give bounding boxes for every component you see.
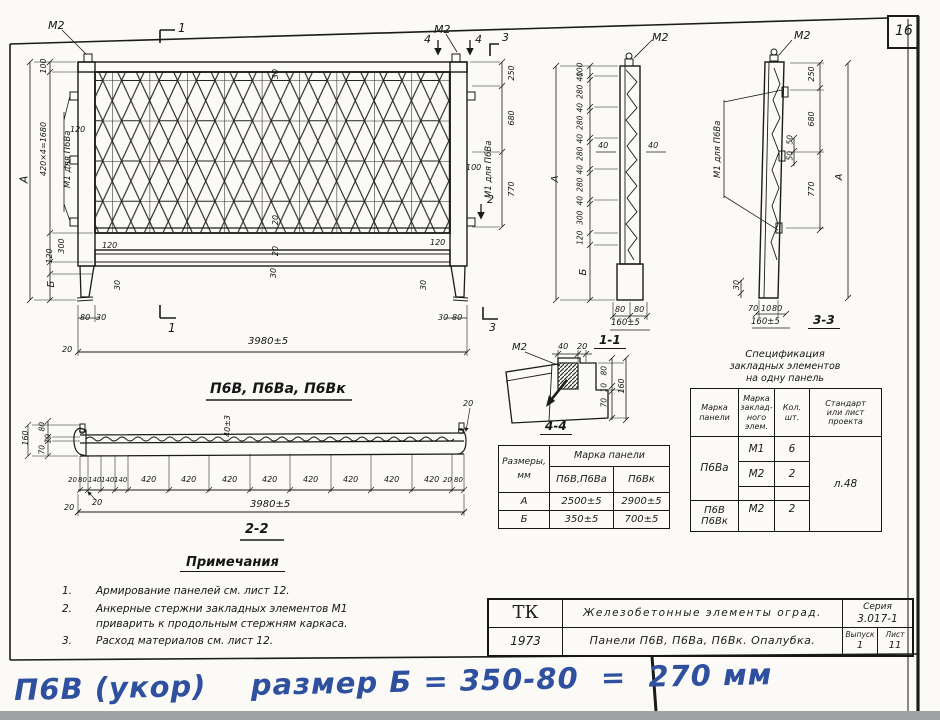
section-2-2 bbox=[25, 400, 470, 540]
s22-chain-6: 420 bbox=[181, 476, 196, 484]
detail-4-4 bbox=[506, 350, 629, 423]
note-3-text: Расход материалов см. лист 12. bbox=[96, 636, 273, 647]
front-dim-300: 300 bbox=[58, 226, 66, 266]
d44-dim-20: 20 bbox=[577, 343, 587, 351]
front-cut3-top: 3 bbox=[502, 32, 509, 43]
notes-title: Примечания bbox=[180, 556, 285, 572]
title-block-series: 3.017-1 bbox=[857, 613, 898, 625]
section-1-1-caption: 1-1 bbox=[594, 334, 626, 349]
spec-g1r1-qty: 6 bbox=[774, 436, 809, 461]
s33-dim-70: 70 bbox=[748, 305, 758, 313]
front-dim-f30l: 30 bbox=[114, 265, 122, 305]
front-dim-i30b: 30 bbox=[270, 253, 278, 293]
size-row-a-name: А bbox=[499, 492, 549, 510]
title-block-org: ТК bbox=[489, 600, 562, 627]
s11-dim-80r: 80 bbox=[634, 306, 644, 314]
s22-chain-4: 140 bbox=[114, 477, 127, 484]
front-dim-f30r: 30 bbox=[420, 265, 428, 305]
detail-4-4-caption: 4-4 bbox=[540, 420, 572, 435]
s33-dim-250: 250 bbox=[808, 54, 816, 94]
spec-empty-qty bbox=[774, 486, 809, 500]
s22-chain-0: 20 bbox=[68, 477, 77, 484]
front-dim-680: 680 bbox=[508, 98, 516, 138]
embed-spec-table: Марка панели Марка заклад- ного элем. Ко… bbox=[690, 388, 882, 532]
front-dim-80l: 80 bbox=[80, 314, 90, 322]
front-cut4-left: 4 bbox=[424, 34, 431, 45]
s22-chain-1: 80 bbox=[78, 477, 87, 484]
front-dim-i120r: 120 bbox=[430, 239, 445, 247]
spec-h3-line2: шт. bbox=[785, 413, 800, 422]
spec-h2-line4: элем. bbox=[745, 422, 768, 431]
s33-dim-a: А bbox=[835, 157, 845, 197]
s11-dim-a: А bbox=[551, 159, 561, 199]
s33-dim-770: 770 bbox=[808, 169, 816, 209]
s22-dim-70: 70 bbox=[38, 430, 46, 470]
spec-title-line1: Спецификация bbox=[690, 350, 880, 360]
front-m2-right-label: М2 bbox=[434, 24, 451, 35]
front-dim-250: 250 bbox=[508, 53, 516, 93]
spec-h4-line3: проекта bbox=[828, 417, 863, 426]
d44-dim-70: 70 bbox=[600, 383, 608, 423]
front-dim-b: Б bbox=[47, 264, 57, 304]
front-cut1-top: 1 bbox=[178, 22, 186, 34]
s22-dim-c20: 20 bbox=[92, 499, 102, 507]
d44-m2-label: М2 bbox=[512, 343, 527, 353]
s11-dim-b: Б bbox=[579, 252, 589, 292]
sheet-number: 16 bbox=[895, 23, 913, 39]
s22-chain-3: 140 bbox=[101, 477, 114, 484]
front-dim-total: 3980±5 bbox=[248, 337, 288, 347]
s22-chain-10: 420 bbox=[343, 476, 358, 484]
s22-chain-13: 20 bbox=[443, 477, 452, 484]
title-block-row1: Железобетонные элементы оград. bbox=[562, 600, 842, 627]
s22-dim-total: 3980±5 bbox=[250, 500, 290, 510]
s22-chain-8: 420 bbox=[262, 476, 277, 484]
s22-dim-t20: 20 bbox=[463, 400, 473, 408]
size-col0-title: Размеры, bbox=[502, 457, 546, 467]
s33-dim-10: 10 bbox=[761, 305, 771, 313]
spec-g1r2-mark: М2 bbox=[738, 461, 774, 486]
section-3-3-caption: 3-3 bbox=[808, 314, 840, 329]
s22-dim-160: 160 bbox=[22, 418, 30, 458]
size-col0-unit: мм bbox=[517, 471, 531, 481]
spec-g2r1-qty: 2 bbox=[774, 500, 809, 531]
spec-g1r2-qty: 2 bbox=[774, 461, 809, 486]
spec-standard: л.48 bbox=[809, 436, 881, 531]
spec-title-line3: на одну панель bbox=[690, 374, 880, 384]
spec-h4-line2: или лист bbox=[827, 408, 864, 417]
front-dim-100: 100 bbox=[40, 46, 48, 86]
s11-dim-160: 160±5 bbox=[611, 319, 640, 328]
s33-dim-30: 30 bbox=[733, 265, 741, 305]
spec-h1-line1: Марка bbox=[701, 403, 728, 412]
s33-m2-label: М2 bbox=[794, 30, 811, 41]
title-block-series-label: Серия bbox=[863, 602, 892, 612]
spec-h3-line1: Кол. bbox=[783, 403, 801, 412]
note-2-text-line2: приварить к продольным стержням каркаса. bbox=[96, 619, 347, 630]
note-1-number: 1. bbox=[62, 586, 72, 597]
s11-dim-80l: 80 bbox=[615, 306, 625, 314]
spec-empty-mark bbox=[738, 486, 774, 500]
s22-dim-40: 40±3 bbox=[224, 406, 232, 446]
title-block-sheet-label: Лист bbox=[885, 631, 904, 640]
front-dim-30l: 30 bbox=[96, 314, 106, 322]
spec-h1-line2: панели bbox=[699, 413, 730, 422]
spec-title-line2: закладных элементов bbox=[690, 362, 880, 372]
title-block-issue: 1 bbox=[857, 640, 863, 652]
s22-chain-7: 420 bbox=[222, 476, 237, 484]
d44-dim-160: 160 bbox=[618, 366, 626, 406]
s11-dim-40l: 40 bbox=[598, 142, 608, 150]
front-dim-1680: 420×4=1680 bbox=[40, 107, 48, 191]
s22-chain-2: 140 bbox=[88, 477, 101, 484]
size-group-header: Марка панели bbox=[549, 446, 669, 466]
front-embed-label-right: М1 для П6Ва bbox=[485, 127, 494, 211]
front-dim-e120: 120 bbox=[70, 126, 85, 134]
s22-dim-b20: 20 bbox=[64, 504, 74, 512]
s22-chain-9: 420 bbox=[303, 476, 318, 484]
front-m2-left-label: М2 bbox=[48, 20, 65, 31]
note-2-text-line1: Анкерные стержни закладных элементов М1 bbox=[96, 604, 347, 615]
spec-group1-name: П6Ва bbox=[691, 436, 738, 500]
s11-dim-40r: 40 bbox=[648, 142, 658, 150]
front-cut1-bottom: 1 bbox=[168, 322, 176, 334]
front-dim-i30t: 30 bbox=[272, 54, 280, 94]
size-row-a-v1: 2500±5 bbox=[549, 492, 613, 510]
s22-chain-11: 420 bbox=[384, 476, 399, 484]
front-dim-80r: 80 bbox=[452, 314, 462, 322]
size-row-b-v2: 700±5 bbox=[613, 510, 669, 528]
spec-h2-line1: Марка bbox=[743, 394, 770, 403]
spec-g2r1-mark: М2 bbox=[738, 500, 774, 531]
s33-dim-680: 680 bbox=[808, 99, 816, 139]
spec-h2-line3: ного bbox=[747, 413, 766, 422]
s22-chain-12: 420 bbox=[424, 476, 439, 484]
size-mark-2: П6Вк bbox=[613, 466, 669, 492]
spec-g1r1-mark: М1 bbox=[738, 436, 774, 461]
note-2-number: 2. bbox=[62, 604, 72, 615]
spec-h4-line1: Стандарт bbox=[825, 399, 866, 408]
spec-group2-name-2: П6Вк bbox=[701, 516, 728, 528]
front-cut3-bottom: 3 bbox=[489, 322, 496, 333]
note-1-text: Армирование панелей см. лист 12. bbox=[96, 586, 290, 597]
front-dim-i120l: 120 bbox=[102, 242, 117, 250]
s33-dim-80: 80 bbox=[772, 305, 782, 313]
d44-dim-40: 40 bbox=[558, 343, 568, 351]
front-cut4-right: 4 bbox=[475, 34, 482, 45]
section-3-3 bbox=[724, 40, 851, 328]
front-dim-20: 20 bbox=[62, 346, 72, 354]
front-dim-a: А bbox=[19, 160, 30, 200]
s33-dim-50b: 50 bbox=[786, 136, 794, 176]
size-mark-1: П6В,П6Ва bbox=[549, 466, 613, 492]
section-2-2-caption: 2-2 bbox=[240, 523, 274, 538]
scan-edge-strip bbox=[0, 711, 940, 720]
front-dim-770: 770 bbox=[508, 169, 516, 209]
front-dim-r100: 100 bbox=[466, 164, 481, 172]
size-row-a-v2: 2900±5 bbox=[613, 492, 669, 510]
title-block-sheet: 11 bbox=[889, 640, 902, 652]
title-block-issue-label: Выпуск bbox=[845, 631, 874, 640]
s33-embed-label: М1 для П6Ва bbox=[714, 107, 723, 191]
title-block-year: 1973 bbox=[489, 627, 562, 655]
s11-m2-label: М2 bbox=[652, 32, 669, 43]
panel-size-table: Размеры, мм Марка панели П6В,П6Ва П6Вк А… bbox=[498, 445, 670, 529]
spec-h2-line2: заклад- bbox=[740, 403, 772, 412]
section-1-1 bbox=[553, 40, 666, 330]
note-3-number: 3. bbox=[62, 636, 72, 647]
title-block-row2: Панели П6В, П6Ва, П6Вк. Опалубка. bbox=[562, 627, 842, 655]
title-block: ТК Железобетонные элементы оград. Серия … bbox=[487, 598, 914, 657]
s22-chain-14: 80 bbox=[454, 477, 463, 484]
s33-dim-160: 160±5 bbox=[751, 318, 780, 327]
drawing-sheet: 16 М2 М2 1 1 4 4 3 3 2 А 100 420×4=1680 … bbox=[0, 0, 940, 720]
size-row-b-name: Б bbox=[499, 510, 549, 528]
front-dim-30r: 30 bbox=[438, 314, 448, 322]
size-row-b-v1: 350±5 bbox=[549, 510, 613, 528]
s22-chain-5: 420 bbox=[141, 476, 156, 484]
panel-marks-title: П6В, П6Ва, П6Вк bbox=[210, 382, 346, 396]
spec-group2-name-1: П6В bbox=[704, 505, 725, 517]
